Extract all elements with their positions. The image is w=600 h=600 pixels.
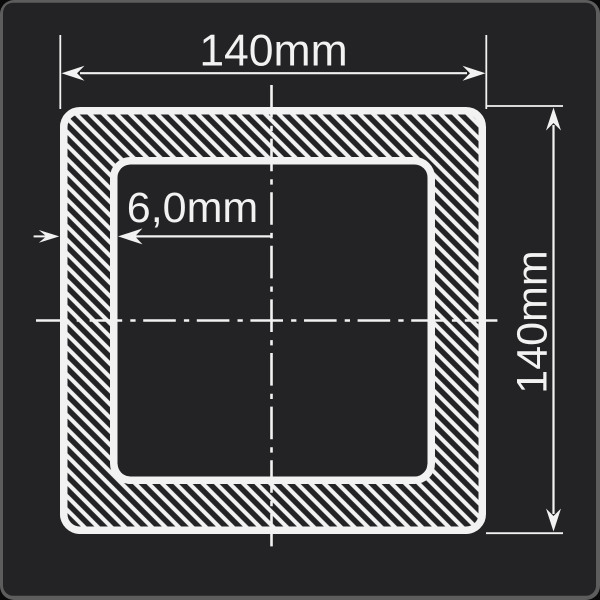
svg-text:6,0mm: 6,0mm [127, 184, 258, 232]
svg-text:140mm: 140mm [509, 250, 557, 393]
svg-text:140mm: 140mm [199, 27, 347, 76]
